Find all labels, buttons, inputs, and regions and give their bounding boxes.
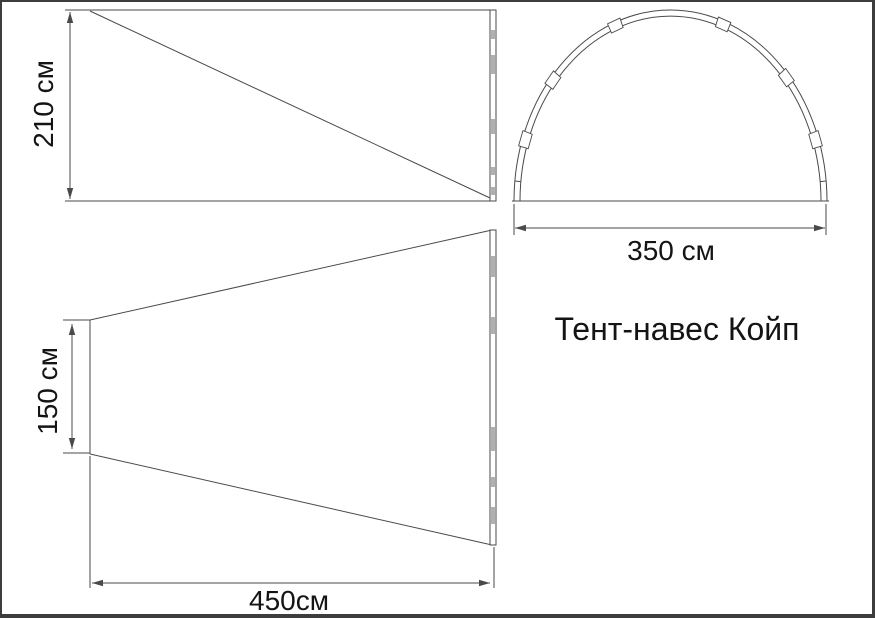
height-dimension-label: 210 см [30,60,58,148]
arch-width-dimension-label: 350 см [627,237,715,265]
tent-diagram-svg [2,2,875,618]
rear-width-dimension-label: 150 см [34,347,62,435]
depth-dimension-label: 450см [249,587,329,615]
product-title: Тент-навес Койп [555,313,800,345]
drawing-canvas: 210 см 350 см 150 см 450см Тент-навес Ко… [0,0,875,618]
